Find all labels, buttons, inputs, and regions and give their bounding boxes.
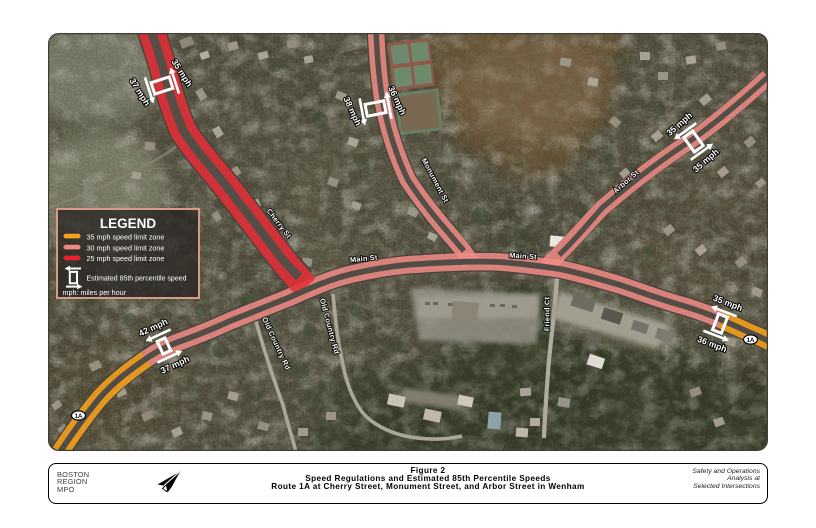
- svg-text:1A: 1A: [747, 338, 755, 344]
- svg-text:30 mph speed limit zone: 30 mph speed limit zone: [87, 243, 165, 252]
- svg-text:Friend Ct: Friend Ct: [543, 297, 552, 332]
- svg-text:Estimated 85th percentile spee: Estimated 85th percentile speed: [87, 276, 187, 283]
- svg-text:25 mph speed limit zone: 25 mph speed limit zone: [87, 254, 165, 263]
- svg-text:LEGEND: LEGEND: [100, 216, 157, 231]
- svg-text:35 mph speed limit zone: 35 mph speed limit zone: [87, 232, 165, 241]
- svg-text:mph: miles per hour: mph: miles per hour: [63, 288, 127, 297]
- svg-text:1A: 1A: [75, 414, 83, 420]
